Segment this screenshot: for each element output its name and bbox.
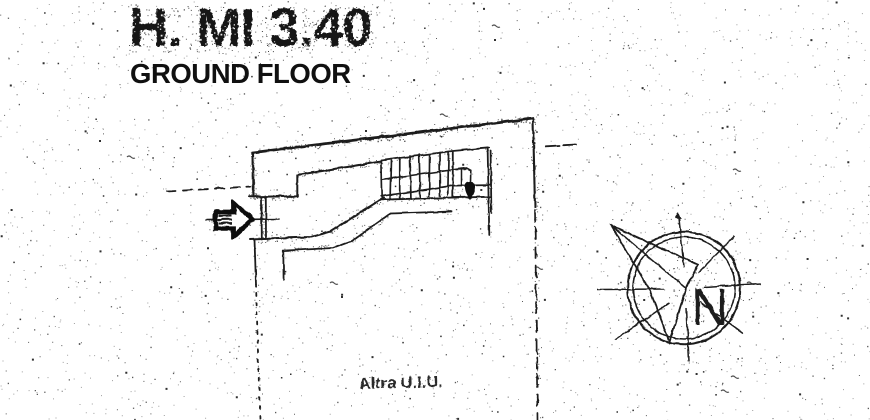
svg-text:GROUND FLOOR: GROUND FLOOR (130, 58, 351, 89)
svg-text:N: N (691, 279, 729, 337)
svg-text:Altra U.I.U.: Altra U.I.U. (359, 374, 444, 393)
